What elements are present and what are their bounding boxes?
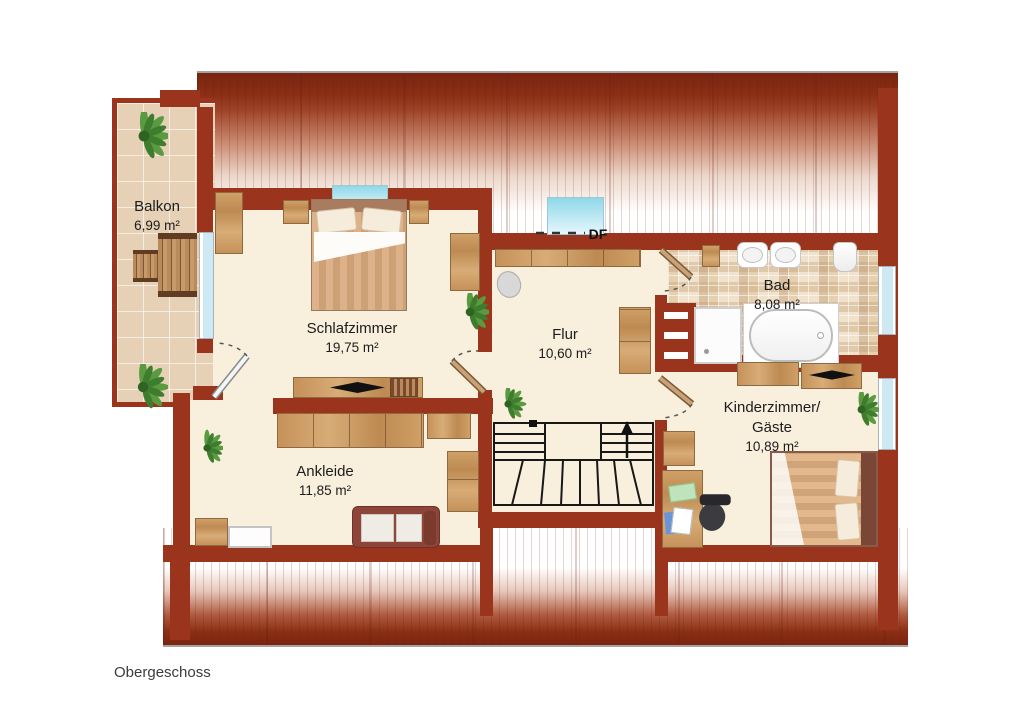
cabinet-kinderzimmer: [663, 431, 695, 466]
plant-icon: [489, 388, 527, 420]
room-label-ankleide: Ankleide 11,85 m²: [296, 462, 354, 500]
room-name: Gäste: [724, 418, 821, 438]
radiator-bar: [664, 332, 688, 339]
wall-left-lower-column: [170, 562, 190, 640]
sofa-armrest: [424, 511, 436, 545]
sideboard-flur: [495, 249, 641, 267]
sofa-cushion: [361, 514, 394, 542]
wardrobe-row: [277, 413, 424, 448]
room-area: 8,08 m²: [754, 296, 800, 314]
room-area: 10,89 m²: [724, 438, 821, 456]
table-white: [228, 526, 272, 548]
balcony-door-window: [199, 232, 214, 339]
bathtub-drain: [817, 332, 824, 339]
shower-drain: [704, 349, 709, 354]
wall-left-corner: [193, 386, 223, 400]
bed-sheet-fold: [314, 232, 405, 262]
wall-left-stub: [197, 339, 213, 353]
plant-icon: [191, 428, 223, 468]
sofa-cushion: [396, 514, 422, 542]
wall-ankleide-bottom: [163, 545, 493, 562]
bad-window: [878, 266, 896, 335]
bed-pillow: [834, 502, 860, 541]
cabinet-flur: [619, 307, 651, 374]
bed-sheet-fold: [772, 453, 804, 545]
room-name: Bad: [754, 276, 800, 296]
plant-icon: [118, 364, 168, 410]
sink-basin: [775, 247, 796, 263]
bed-kinderzimmer: [770, 451, 878, 547]
room-name: Kinderzimmer/: [724, 398, 821, 418]
cabinet-ankleide-low: [195, 518, 228, 546]
room-name: Flur: [538, 325, 591, 345]
sink-basin: [742, 247, 763, 263]
kinderzimmer-window: [878, 378, 896, 450]
balcony-chair: [133, 250, 158, 282]
plant-icon: [120, 112, 168, 160]
room-label-schlafzimmer: Schlafzimmer 19,75 m²: [307, 319, 398, 357]
nightstand-right: [409, 200, 429, 224]
room-label-flur: Flur 10,60 m²: [538, 325, 591, 363]
sink: [737, 242, 768, 268]
wall-flur-top: [480, 233, 668, 250]
desk-schlafzimmer: [450, 233, 480, 291]
sink: [770, 242, 801, 268]
cabinet-ankleide-right: [427, 413, 471, 439]
room-area: 10,60 m²: [538, 345, 591, 363]
wall-ankleide-top: [273, 398, 493, 414]
room-area: 6,99 m²: [134, 217, 180, 235]
plant-icon: [451, 293, 489, 331]
skylight-label-df: DF: [589, 226, 608, 242]
bed-headboard: [861, 453, 876, 545]
wall-left-upper: [197, 107, 213, 233]
sideboard-kinderzimmer: [737, 362, 799, 386]
cabinet-bad: [702, 245, 720, 267]
toilet: [833, 242, 857, 272]
towel-radiator: [656, 303, 696, 369]
bed-pillow: [361, 207, 402, 234]
wardrobe-tall: [215, 192, 243, 254]
room-area: 19,75 m²: [307, 339, 398, 357]
floor-caption: Obergeschoss: [114, 664, 211, 681]
radiator-bar: [664, 352, 688, 359]
room-name: Balkon: [134, 197, 180, 217]
wall-stairs-bottom: [478, 512, 668, 528]
wall-stairwell-left-lower: [480, 528, 493, 616]
room-label-kinderzimmer: Kinderzimmer/ Gäste 10,89 m²: [724, 398, 821, 455]
room-label-bad: Bad 8,08 m²: [754, 276, 800, 314]
room-name: Schlafzimmer: [307, 319, 398, 339]
floorplan-obergeschoss: Balkon 6,99 m² Schlafzimmer 19,75 m² Flu…: [0, 0, 1024, 724]
bed-pillow: [316, 207, 357, 234]
tv-icon: [330, 381, 385, 394]
shelf-books: [390, 378, 418, 397]
radiator-bar: [664, 312, 688, 319]
balcony-table: [158, 233, 197, 297]
shower: [694, 307, 742, 364]
bed-pillow: [834, 459, 860, 498]
tv-icon: [809, 369, 855, 381]
double-bed: [311, 199, 407, 311]
room-name: Ankleide: [296, 462, 354, 482]
wall-right-outer: [878, 88, 898, 630]
sofa: [352, 506, 440, 548]
nightstand-left: [283, 200, 309, 224]
wall-top-left-stub: [160, 90, 200, 107]
cabinet-ankleide-wall: [447, 451, 479, 512]
plant-icon: [844, 392, 879, 427]
room-label-balkon: Balkon 6,99 m²: [134, 197, 180, 235]
room-area: 11,85 m²: [296, 482, 354, 500]
wall-ankleide-left: [173, 393, 190, 562]
